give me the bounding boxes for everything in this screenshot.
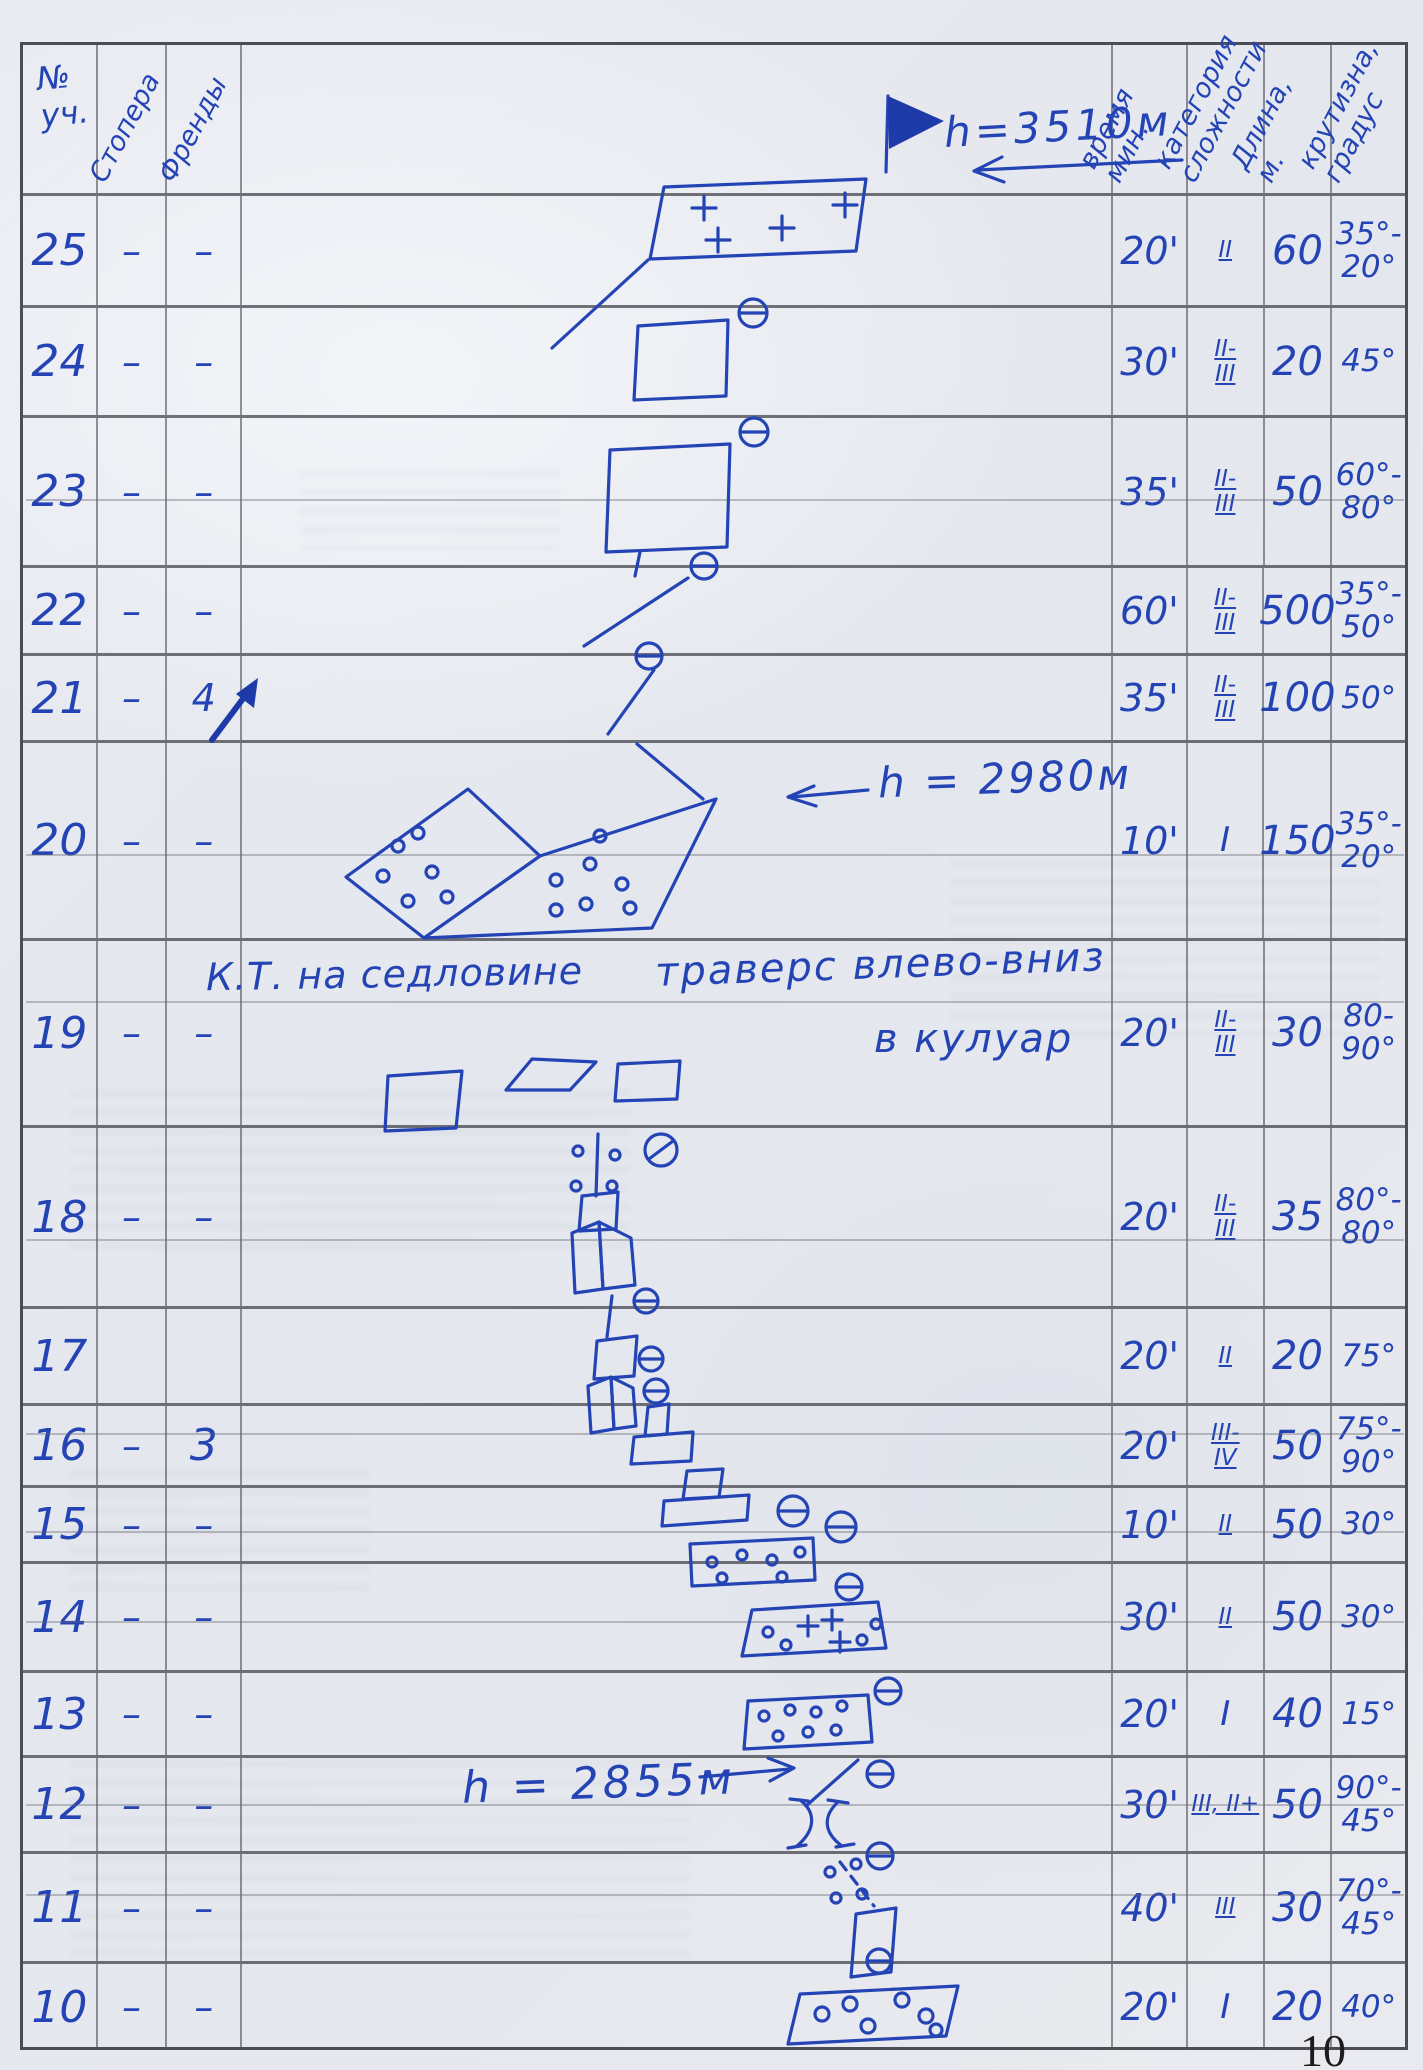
stoppers-value: – [98, 1758, 168, 1851]
time-value: 20' [1113, 1309, 1188, 1403]
table-row-10: 10 – – 20' I 20 40° [23, 1961, 1405, 2050]
length-value: 60 [1265, 196, 1333, 305]
table-row-15: 15 – – 10' II 50 30° [23, 1485, 1405, 1561]
table-row-16: 16 – 3 20' III- IV 50 75°- 90° [23, 1403, 1405, 1485]
steepness-value: 50° [1332, 656, 1405, 740]
time-value: 60' [1113, 568, 1188, 653]
steepness-value: 35°- 20° [1332, 196, 1405, 305]
header-steepness: крутизна, градус [1332, 45, 1405, 193]
header-friends: Френды [167, 45, 242, 193]
length-value: 150 [1264, 743, 1332, 938]
length-value: 50 [1265, 1758, 1333, 1851]
section-number: 21 [23, 656, 98, 740]
section-number: 15 [23, 1488, 98, 1561]
steepness-value: 80- 90° [1332, 941, 1405, 1125]
section-number: 11 [23, 1854, 98, 1961]
table-row-24: 24 – – 30' II- III 20 45° [23, 305, 1405, 415]
stoppers-value: – [98, 941, 168, 1125]
steepness-value: 75°- 90° [1332, 1406, 1405, 1485]
time-value: 20' [1113, 1406, 1188, 1485]
route-sketch-cell [242, 1488, 1113, 1561]
friends-value: – [167, 1488, 242, 1561]
stoppers-value: – [98, 308, 168, 415]
route-table: № уч. Стопера Френды время мин. категори… [20, 42, 1408, 2050]
category-value: II [1188, 196, 1265, 305]
section-number: 23 [23, 418, 98, 565]
friends-value [167, 1309, 242, 1403]
steepness-value: 35°- 50° [1332, 568, 1405, 653]
time-value: 10' [1113, 1488, 1188, 1561]
steepness-value: 75° [1332, 1309, 1405, 1403]
stoppers-value: – [98, 1964, 168, 2050]
header-section-number-label: № уч. [28, 42, 91, 135]
saddle-height-label: h = 2980м [877, 750, 1133, 808]
checkpoint-note: К.Т. на седловине [206, 949, 584, 1000]
scanned-route-topo-page: № уч. Стопера Френды время мин. категори… [0, 0, 1423, 2070]
table-row-21: 21 – 4 35' II- III 100 50° [23, 653, 1405, 740]
section-number: 20 [23, 743, 98, 938]
length-value: 50 [1265, 418, 1333, 565]
category-value: I [1188, 1964, 1265, 2050]
page-number: 10 [1300, 2024, 1346, 2070]
category-value: III, II+ [1188, 1758, 1265, 1851]
length-value: 20 [1265, 1309, 1333, 1403]
length-value: 500 [1264, 568, 1332, 653]
category-value: II [1188, 1488, 1265, 1561]
stoppers-value: – [98, 1406, 168, 1485]
time-value: 20' [1113, 941, 1188, 1125]
friends-value: – [167, 568, 242, 653]
table-row-22: 22 – – 60' II- III 500 35°- 50° [23, 565, 1405, 653]
section-number: 17 [23, 1309, 98, 1403]
route-sketch-cell [242, 1309, 1113, 1403]
friends-value: – [167, 1964, 242, 2050]
time-value: 20' [1113, 196, 1188, 305]
steepness-value: 60°- 80° [1332, 418, 1405, 565]
length-value: 35 [1265, 1128, 1333, 1306]
category-value: II- III [1188, 656, 1265, 740]
stoppers-value: – [98, 656, 168, 740]
steepness-value: 45° [1332, 308, 1405, 415]
stoppers-value: – [98, 743, 168, 938]
route-sketch-cell [242, 1854, 1113, 1961]
couloir-note: в кулуар [874, 1016, 1073, 1062]
table-row-20: 20 – – 10' I 150 35°- 20° [23, 740, 1405, 938]
stoppers-value: – [98, 568, 168, 653]
table-row-17: 17 20' II 20 75° [23, 1306, 1405, 1403]
category-value: II- III [1188, 568, 1265, 653]
mid-height-label: h = 2855м [461, 1753, 737, 1814]
category-value: II [1188, 1564, 1265, 1670]
friends-value: – [167, 743, 242, 938]
section-number: 22 [23, 568, 98, 653]
table-row-25: 25 – – 20' II 60 35°- 20° [23, 193, 1405, 305]
section-number: 16 [23, 1406, 98, 1485]
route-sketch-cell [242, 1406, 1113, 1485]
route-sketch-cell [242, 418, 1113, 565]
category-value: III- IV [1188, 1406, 1265, 1485]
friends-value: – [167, 196, 242, 305]
table-row-18: 18 – – 20' II- III 35 80°- 80° [23, 1125, 1405, 1306]
table-header-row: № уч. Стопера Френды время мин. категори… [23, 45, 1405, 193]
route-sketch-cell [242, 308, 1113, 415]
section-number: 12 [23, 1758, 98, 1851]
steepness-value: 80°- 80° [1332, 1128, 1405, 1306]
route-sketch-cell [242, 1564, 1113, 1670]
category-value: III [1188, 1854, 1265, 1961]
friends-value: 3 [167, 1406, 242, 1485]
length-value: 50 [1265, 1564, 1333, 1670]
time-value: 30' [1113, 1758, 1188, 1851]
section-number: 13 [23, 1673, 98, 1755]
friends-value: – [167, 1564, 242, 1670]
route-sketch-cell [242, 1964, 1113, 2050]
length-value: 50 [1265, 1488, 1333, 1561]
steepness-value: 90°- 45° [1332, 1758, 1405, 1851]
section-number: 18 [23, 1128, 98, 1306]
time-value: 35' [1113, 418, 1188, 565]
time-value: 35' [1113, 656, 1188, 740]
category-value: II- III [1188, 418, 1265, 565]
stoppers-value: – [98, 196, 168, 305]
category-value: I [1188, 743, 1265, 938]
section-number: 14 [23, 1564, 98, 1670]
stoppers-value: – [98, 1854, 168, 1961]
stoppers-value [98, 1309, 168, 1403]
steepness-value: 30° [1332, 1564, 1405, 1670]
stoppers-value: – [98, 1564, 168, 1670]
friends-value: – [167, 418, 242, 565]
time-value: 20' [1113, 1128, 1188, 1306]
stoppers-value: – [98, 1128, 168, 1306]
steepness-value: 30° [1332, 1488, 1405, 1561]
category-value: II [1188, 1309, 1265, 1403]
length-value: 20 [1265, 308, 1333, 415]
route-sketch-cell [242, 656, 1113, 740]
length-value: 100 [1264, 656, 1332, 740]
length-value: 40 [1265, 1673, 1333, 1755]
friends-value: – [167, 308, 242, 415]
table-row-13: 13 – – 20' I 40 15° [23, 1670, 1405, 1755]
time-value: 20' [1113, 1673, 1188, 1755]
category-value: I [1188, 1673, 1265, 1755]
length-value: 50 [1265, 1406, 1333, 1485]
table-row-23: 23 – – 35' II- III 50 60°- 80° [23, 415, 1405, 565]
stoppers-value: – [98, 418, 168, 565]
time-value: 20' [1113, 1964, 1188, 2050]
route-sketch-cell [242, 568, 1113, 653]
friends-value: – [167, 1758, 242, 1851]
section-number: 24 [23, 308, 98, 415]
route-sketch-cell [242, 1673, 1113, 1755]
time-value: 30' [1113, 308, 1188, 415]
friends-value: – [167, 1673, 242, 1755]
stoppers-value: – [98, 1673, 168, 1755]
section-number: 19 [23, 941, 98, 1125]
category-value: II- III [1188, 308, 1265, 415]
table-row-11: 11 – – 40' III 30 70°- 45° [23, 1851, 1405, 1961]
category-value: II- III [1188, 1128, 1265, 1306]
table-row-14: 14 – – 30' II 50 30° [23, 1561, 1405, 1670]
stoppers-value: – [98, 1488, 168, 1561]
category-value: II- III [1188, 941, 1265, 1125]
steepness-value: 35°- 20° [1332, 743, 1405, 938]
route-sketch-cell [242, 1128, 1113, 1306]
steepness-value: 70°- 45° [1332, 1854, 1405, 1961]
steepness-value: 15° [1332, 1673, 1405, 1755]
friends-value: 4 [167, 656, 242, 740]
length-value: 30 [1265, 1854, 1333, 1961]
section-number: 25 [23, 196, 98, 305]
time-value: 30' [1113, 1564, 1188, 1670]
friends-value: – [167, 1854, 242, 1961]
route-sketch-cell [242, 196, 1113, 305]
length-value: 30 [1265, 941, 1333, 1125]
section-number: 10 [23, 1964, 98, 2050]
friends-value: – [167, 1128, 242, 1306]
time-value: 40' [1113, 1854, 1188, 1961]
